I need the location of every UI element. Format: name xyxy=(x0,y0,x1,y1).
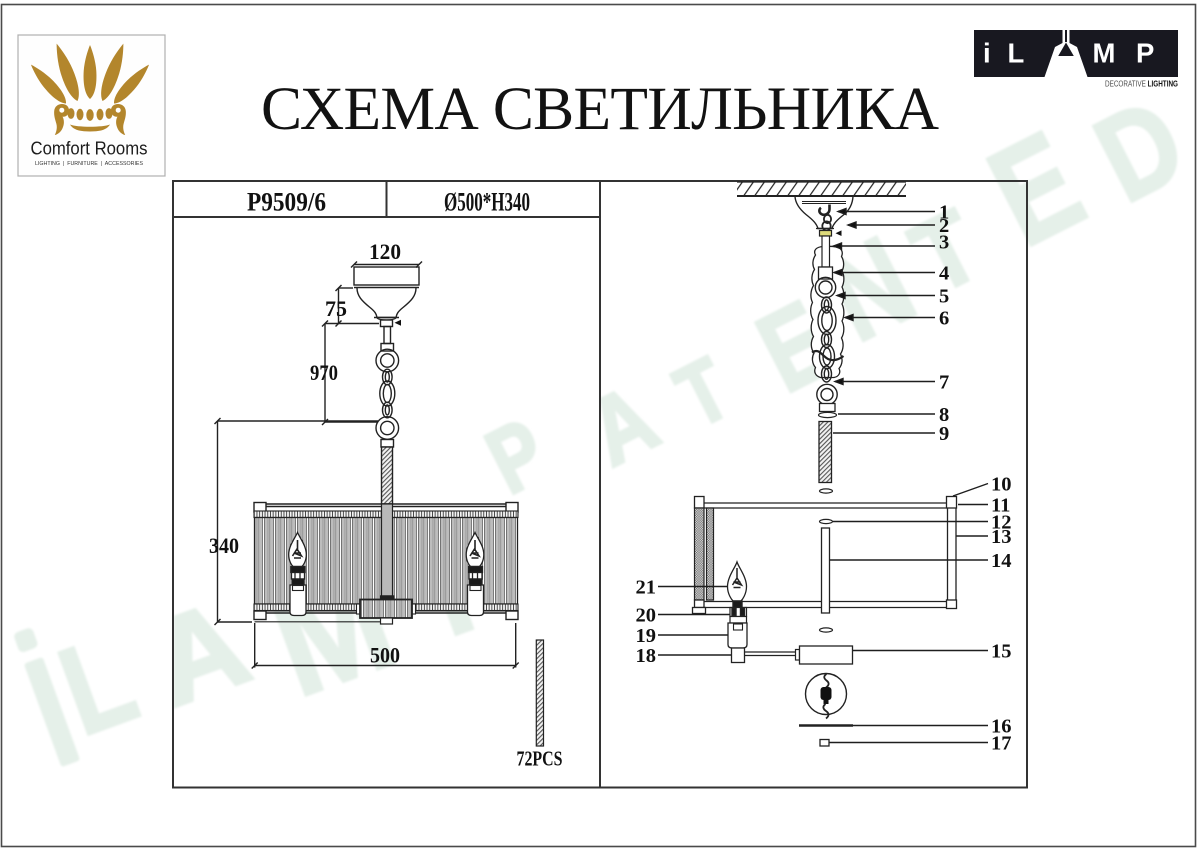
svg-text:500: 500 xyxy=(370,643,400,668)
svg-text:M: M xyxy=(1093,38,1116,69)
svg-text:A: A xyxy=(135,574,264,732)
svg-text:E: E xyxy=(967,101,1105,275)
svg-text:72PCS: 72PCS xyxy=(517,747,563,771)
svg-text:75: 75 xyxy=(325,296,347,321)
svg-text:15: 15 xyxy=(991,641,1012,663)
svg-text:P9509/6: P9509/6 xyxy=(247,187,326,217)
svg-text:P: P xyxy=(472,399,562,513)
svg-text:14: 14 xyxy=(991,550,1012,572)
svg-text:D: D xyxy=(1076,72,1200,227)
svg-text:120: 120 xyxy=(369,239,401,264)
svg-text:17: 17 xyxy=(991,733,1012,755)
svg-text:3: 3 xyxy=(939,232,949,254)
svg-text:19: 19 xyxy=(636,625,657,647)
svg-text:L: L xyxy=(1008,38,1025,69)
svg-text:340: 340 xyxy=(209,533,239,558)
svg-text:P: P xyxy=(1136,38,1154,69)
svg-text:T: T xyxy=(661,339,744,446)
svg-text:13: 13 xyxy=(991,526,1012,548)
svg-text:Ø500*H340: Ø500*H340 xyxy=(444,187,530,217)
svg-text:970: 970 xyxy=(310,360,338,385)
svg-text:5: 5 xyxy=(939,286,949,308)
svg-text:21: 21 xyxy=(636,577,657,599)
svg-text:СХЕМА СВЕТИЛЬНИКА: СХЕМА СВЕТИЛЬНИКА xyxy=(261,75,939,143)
svg-text:6: 6 xyxy=(939,308,949,330)
svg-text:LIGHTING | FURNITURE | ACC: LIGHTING | FURNITURE | ACCESSORIES xyxy=(35,161,143,167)
svg-text:i: i xyxy=(983,38,991,69)
svg-text:10: 10 xyxy=(991,474,1012,496)
svg-text:A: A xyxy=(572,364,672,486)
svg-text:DECORATIVE LIGHTING: DECORATIVE LIGHTING xyxy=(1105,80,1178,89)
svg-text:20: 20 xyxy=(636,605,657,627)
svg-text:9: 9 xyxy=(939,423,949,445)
svg-text:4: 4 xyxy=(939,263,949,285)
svg-text:18: 18 xyxy=(636,645,657,667)
svg-text:Comfort Rooms: Comfort Rooms xyxy=(31,138,148,159)
svg-text:7: 7 xyxy=(939,372,949,394)
